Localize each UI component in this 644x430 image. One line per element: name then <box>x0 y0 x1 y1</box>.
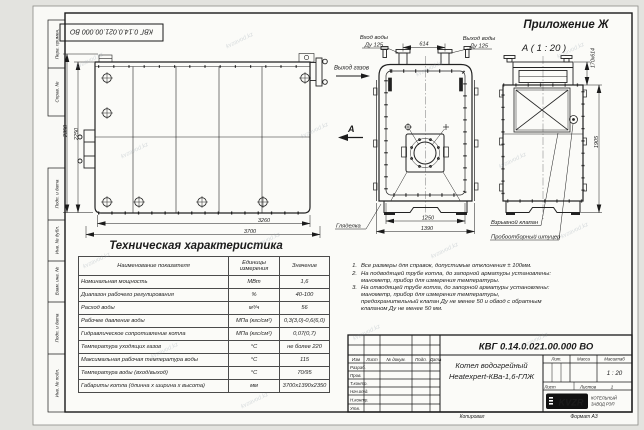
dim-detail-height: 1905 <box>594 135 600 148</box>
dim-side-length-outer: 3700 <box>244 229 257 235</box>
spec-row: Максимальная рабочая температура воды°С1… <box>79 354 330 367</box>
margin-label-perv-primen: Перв. примен. <box>55 29 60 60</box>
note-item: 3. На отводящей трубе котла, до запорной… <box>349 285 551 312</box>
spec-row: Температура уходящих газов°Сне более 220 <box>79 341 330 354</box>
margin-label-podp-data-1: Подп. и дата <box>55 179 60 208</box>
dim-flue-section: 170х614 <box>591 48 597 68</box>
dim-front-width-outer: 1390 <box>421 226 434 232</box>
row-utv: Утв. <box>350 406 360 411</box>
spec-row: Диапазон рабочего регулирования%40-100 <box>79 289 330 302</box>
product-name-line-2: Heatexpert-КВа-1,6-ГЛЖ <box>449 372 535 381</box>
spec-row: Рабочее давление водыМПа (кгс/см²)0,3(3,… <box>79 315 330 328</box>
water-inlet-label-2: Ду 125 <box>364 43 384 49</box>
spec-header-unit: Единицы измерения <box>229 257 280 276</box>
row-prov: Пров. <box>350 373 362 378</box>
spec-header-value: Значение <box>280 257 330 276</box>
company-line-2: ЗАВОД РЭП <box>591 402 615 407</box>
sheets-value: 1 <box>611 384 614 390</box>
row-razrab: Разраб. <box>350 365 366 370</box>
col-data: Дата <box>429 357 442 362</box>
margin-label-inv-podl: Инв. № подл. <box>55 369 60 398</box>
logo-text: KVZR <box>558 398 583 408</box>
notes-list: 1. Все размеры для справок, допустимые о… <box>349 263 551 314</box>
col-podp: Подп. <box>415 357 427 362</box>
margin-label-sprav-no: Справ. № <box>55 82 60 103</box>
margin-label-podp-data-2: Подп. и дата <box>55 313 60 342</box>
scale-label: Масштаб <box>604 357 625 362</box>
appendix-label: Приложение Ж <box>523 19 610 31</box>
sampling-fitting-label: Пробоотборный штуцер <box>491 234 561 241</box>
spec-table-section: Техническая характеристика Наименование … <box>78 240 314 393</box>
row-tkontr: Т.контр. <box>350 381 368 386</box>
spec-table: Наименование показателя Единицы измерени… <box>78 256 330 393</box>
water-inlet-label-1: Вход воды <box>360 35 389 41</box>
spec-table-title: Техническая характеристика <box>78 240 314 252</box>
spec-table-header-row: Наименование показателя Единицы измерени… <box>79 257 330 276</box>
spec-row: Гидравлическое сопротивление котлаМПа (к… <box>79 328 330 341</box>
gas-outlet-label: Выход газов <box>334 66 369 72</box>
company-line-1: КОТЕЛЬНЫЙ <box>591 396 617 401</box>
row-nachotd: Нач.отд. <box>350 389 369 394</box>
water-outlet-label-2: Ду 125 <box>469 44 489 50</box>
view-a-letter: А <box>347 124 355 134</box>
sheet-label: Лист <box>543 384 556 389</box>
spec-header-name: Наименование показателя <box>79 257 229 276</box>
note-item: 1. Все размеры для справок, допустимые о… <box>349 263 551 270</box>
dim-side-height-outer: 2350 <box>63 124 69 138</box>
explosion-valve-label: Взрывной клапан <box>491 219 539 226</box>
drawing-sheet: Перв. примен. Справ. № Подп. и дата Инв.… <box>0 0 644 430</box>
water-outlet-label-1: Выход воды <box>463 36 496 42</box>
margin-label-inv-dubl: Инв. № дубл. <box>55 226 60 254</box>
spec-row: Габариты котла (длинна х ширина х высота… <box>79 380 330 393</box>
lit-label: Лит. <box>550 357 561 362</box>
sight-glass-label: Гляделка <box>336 224 362 230</box>
scale-value: 1 : 20 <box>607 370 623 377</box>
copied-label: Копировал <box>460 414 485 420</box>
spec-row: Номинальная мощностьМВт1,6 <box>79 276 330 289</box>
top-stamp-text: КВГ 0.14.0.021.00.000 ВО <box>70 28 153 35</box>
title-block-doc-number: КВГ 0.14.0.021.00.000 ВО <box>479 342 594 353</box>
sheets-label: Листов <box>579 384 597 389</box>
note-item: 2. На подводящей трубе котла, до запорно… <box>349 271 551 285</box>
product-name-line-1: Котел водогрейный <box>455 361 528 370</box>
mass-label: Масса <box>577 357 591 362</box>
dim-side-length-inner: 3260 <box>258 218 271 224</box>
dim-pipe-spacing: 614 <box>419 42 428 48</box>
spec-row: Температура воды (вход/выход)°С70/95 <box>79 367 330 380</box>
dim-front-width-inner: 1250 <box>422 215 435 221</box>
dim-side-height-inner: 2250 <box>74 127 80 141</box>
row-nkontr: Н.контр. <box>350 398 369 403</box>
margin-label-vzam-inv: Взам. инв. № <box>55 267 60 295</box>
col-list: Лист <box>365 357 378 362</box>
format-label: Формат А3 <box>570 414 598 420</box>
detail-view-title: А ( 1 : 20 ) <box>521 43 566 54</box>
col-izm: Изм <box>352 357 360 362</box>
col-doc: № докум. <box>386 357 405 362</box>
spec-row: Расход водым³/ч56 <box>79 302 330 315</box>
